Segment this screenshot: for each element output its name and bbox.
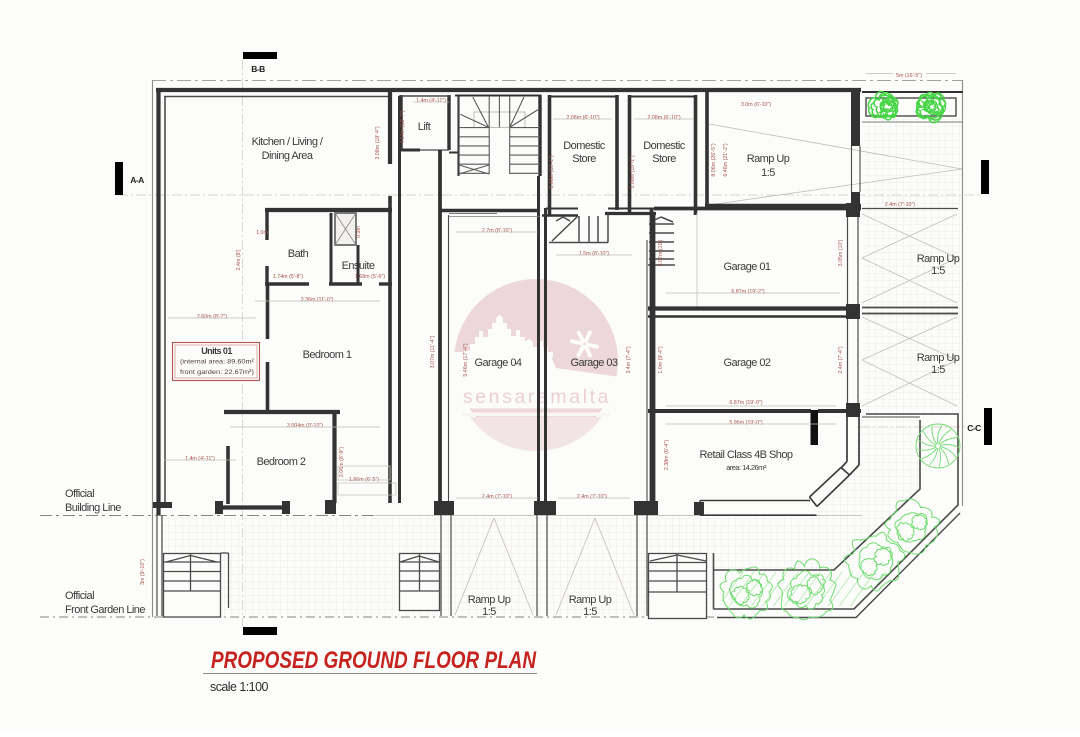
- svg-text:5.96m (19′-0″): 5.96m (19′-0″): [729, 420, 762, 426]
- svg-text:Bedroom 1: Bedroom 1: [303, 349, 352, 361]
- svg-text:2.4m (7′-10″): 2.4m (7′-10″): [577, 494, 607, 500]
- svg-text:Retail Class 4B Shop: Retail Class 4B Shop: [700, 449, 793, 461]
- svg-text:1.0m (9′-4″): 1.0m (9′-4″): [658, 346, 664, 374]
- svg-text:6.87m (19′-2″): 6.87m (19′-2″): [731, 289, 764, 295]
- svg-text:Ensuite: Ensuite: [342, 260, 375, 272]
- svg-text:3.07m (11′-4″): 3.07m (11′-4″): [430, 335, 436, 368]
- svg-text:1:5: 1:5: [761, 167, 775, 179]
- svg-text:1.68m (5′-6″): 1.68m (5′-6″): [355, 274, 385, 280]
- svg-text:2.7m (8′-10″): 2.7m (8′-10″): [482, 228, 512, 234]
- svg-text:3.07m (10′): 3.07m (10′): [658, 239, 664, 266]
- svg-text:2.4m (8′): 2.4m (8′): [236, 249, 242, 270]
- svg-text:1.0m: 1.0m: [256, 230, 268, 236]
- svg-text:Domestic: Domestic: [643, 140, 685, 152]
- svg-text:Garage 02: Garage 02: [723, 357, 770, 369]
- svg-text:1.5m (8′-10″): 1.5m (8′-10″): [579, 251, 609, 257]
- svg-text:Garage 01: Garage 01: [723, 261, 770, 273]
- svg-text:Store: Store: [572, 153, 596, 165]
- svg-text:C-C: C-C: [967, 423, 981, 433]
- svg-text:1.74m (5′-8″): 1.74m (5′-8″): [273, 274, 303, 280]
- svg-text:Domestic: Domestic: [563, 140, 605, 152]
- svg-text:Lift: Lift: [418, 121, 431, 133]
- svg-text:Building Line: Building Line: [65, 502, 121, 514]
- svg-text:1:5: 1:5: [482, 606, 496, 618]
- svg-text:1:5: 1:5: [931, 364, 945, 376]
- svg-text:Official: Official: [65, 590, 94, 602]
- svg-text:2.06m (8′-9″): 2.06m (8′-9″): [339, 447, 345, 477]
- svg-text:scale 1:100: scale 1:100: [210, 680, 268, 694]
- svg-text:front garden: 22.67m²): front garden: 22.67m²): [180, 369, 254, 376]
- svg-text:1.4m (4′-11″): 1.4m (4′-11″): [185, 456, 215, 462]
- svg-text:2.38m (6′-4″): 2.38m (6′-4″): [664, 440, 670, 470]
- svg-text:3.08m (10′-1″): 3.08m (10′-1″): [549, 155, 555, 188]
- svg-text:Bedroom 2: Bedroom 2: [257, 456, 306, 468]
- svg-text:5m (16′-5″): 5m (16′-5″): [896, 73, 922, 79]
- svg-text:3.0m (6′-10″): 3.0m (6′-10″): [741, 102, 771, 108]
- svg-text:Garage 04: Garage 04: [474, 357, 521, 369]
- svg-text:Ramp Up: Ramp Up: [747, 153, 790, 165]
- svg-text:Official: Official: [65, 488, 94, 500]
- svg-text:Ramp Up: Ramp Up: [917, 352, 960, 364]
- svg-text:6.46m (21′-2″): 6.46m (21′-2″): [723, 143, 729, 176]
- svg-text:A-A: A-A: [130, 175, 144, 185]
- svg-text:3.08m (19′-4″): 3.08m (19′-4″): [375, 126, 381, 159]
- svg-text:5.46m (17′-4″): 5.46m (17′-4″): [463, 343, 469, 376]
- svg-text:3.4m (7′-4″): 3.4m (7′-4″): [626, 346, 632, 374]
- svg-text:0.9m: 0.9m: [356, 226, 362, 238]
- svg-text:1:5: 1:5: [583, 606, 597, 618]
- svg-text:Store: Store: [652, 153, 676, 165]
- svg-text:Units 01: Units 01: [201, 346, 232, 356]
- svg-text:3.36m (11′-0″): 3.36m (11′-0″): [301, 297, 334, 303]
- svg-text:2.08m (6′-10″): 2.08m (6′-10″): [647, 115, 680, 121]
- svg-text:8.06m (26′-5″): 8.06m (26′-5″): [711, 143, 717, 176]
- svg-text:PROPOSED GROUND FLOOR PLAN: PROPOSED GROUND FLOOR PLAN: [211, 647, 537, 674]
- svg-text:2.4m (7′-4″): 2.4m (7′-4″): [838, 346, 844, 374]
- svg-text:2.4m (7′-10″): 2.4m (7′-10″): [885, 202, 915, 208]
- svg-text:2.08m (6′-10″): 2.08m (6′-10″): [566, 115, 599, 121]
- svg-text:1:5: 1:5: [931, 265, 945, 277]
- svg-text:Garage 03: Garage 03: [570, 357, 617, 369]
- svg-text:3.004m (9′-10″): 3.004m (9′-10″): [287, 423, 323, 429]
- svg-text:1.4m (4′-11″): 1.4m (4′-11″): [416, 98, 446, 104]
- svg-text:Bath: Bath: [288, 248, 309, 260]
- svg-text:B-B: B-B: [251, 64, 265, 74]
- svg-text:Front Garden Line: Front Garden Line: [65, 604, 145, 616]
- svg-text:3m (9′-10″): 3m (9′-10″): [140, 559, 146, 585]
- svg-text:3.05m (10′): 3.05m (10′): [838, 239, 844, 266]
- svg-text:Ramp Up: Ramp Up: [917, 253, 960, 265]
- svg-text:Dining Area: Dining Area: [262, 150, 314, 162]
- svg-text:Ramp Up: Ramp Up: [468, 594, 511, 606]
- svg-text:Ramp Up: Ramp Up: [569, 594, 612, 606]
- svg-text:6.87m (19′-0″): 6.87m (19′-0″): [729, 400, 762, 406]
- svg-text:Kitchen / Living /: Kitchen / Living /: [252, 136, 324, 148]
- svg-text:3.08m (10′-1″): 3.08m (10′-1″): [630, 155, 636, 188]
- svg-text:(internal area: 89.60m²: (internal area: 89.60m²: [180, 359, 255, 366]
- svg-text:2.4m (7′-10″): 2.4m (7′-10″): [482, 494, 512, 500]
- svg-text:area: 14.26m²: area: 14.26m²: [726, 463, 767, 472]
- svg-text:2.60m (8′-7″): 2.60m (8′-7″): [197, 314, 227, 320]
- svg-text:4.14m (13′-7″): 4.14m (13′-7″): [400, 110, 406, 143]
